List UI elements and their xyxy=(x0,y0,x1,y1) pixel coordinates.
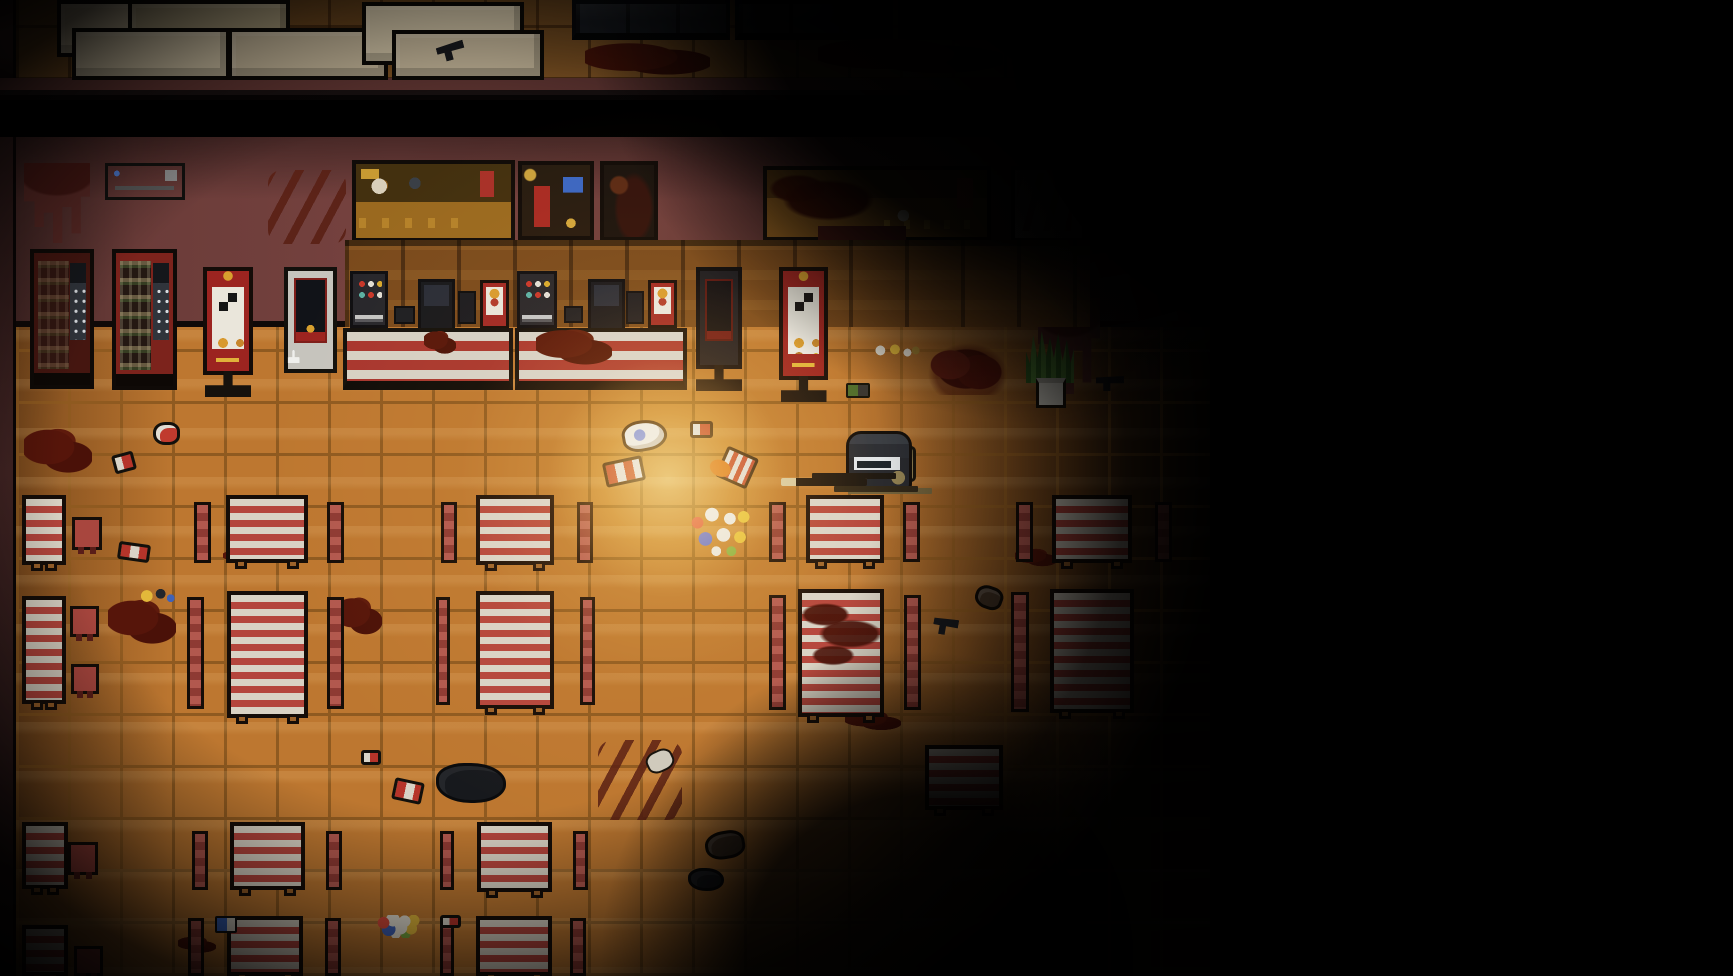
self-order-kiosk xyxy=(284,267,337,373)
dining-table xyxy=(22,822,68,889)
drink-dispenser xyxy=(350,271,388,328)
backroom-left-wall xyxy=(0,0,16,80)
booth-bench xyxy=(188,918,204,976)
stool xyxy=(71,664,99,694)
booth-bench xyxy=(573,831,588,890)
order-kiosk-sign xyxy=(779,267,828,380)
cash-register xyxy=(418,279,455,331)
blood-smear xyxy=(585,40,710,78)
drink-dispenser xyxy=(517,271,557,328)
food-litter xyxy=(133,585,179,607)
dining-table xyxy=(925,745,1003,810)
counter-device xyxy=(394,306,415,324)
order-kiosk-sign xyxy=(203,267,253,375)
dining-table xyxy=(227,916,303,976)
player-character xyxy=(846,431,912,493)
dining-table xyxy=(476,916,552,976)
self-order-kiosk-dark xyxy=(696,267,742,369)
stool xyxy=(68,842,98,875)
dropped-bag xyxy=(436,763,506,803)
booth-bench xyxy=(327,597,344,709)
booth-bench xyxy=(440,831,454,890)
dining-table xyxy=(476,495,554,565)
dining-table xyxy=(806,495,884,563)
blood-pool xyxy=(536,328,612,368)
booth-bench xyxy=(194,502,211,563)
game-viewport[interactable] xyxy=(0,0,1733,976)
blood-pool xyxy=(24,427,92,477)
counter-device xyxy=(564,306,583,323)
potted-plant-pot xyxy=(1036,378,1066,408)
booth-bench xyxy=(326,831,342,890)
booth-bench xyxy=(1155,502,1172,562)
backroom-wall xyxy=(0,78,1090,100)
booth-bench xyxy=(441,502,457,563)
dining-table xyxy=(1050,589,1134,713)
booth-bench xyxy=(570,918,586,976)
dining-table xyxy=(476,591,554,709)
stool xyxy=(70,606,99,637)
booth-bench xyxy=(577,502,593,563)
booth-bench xyxy=(769,502,786,562)
soda-can xyxy=(690,421,713,438)
card-terminal xyxy=(626,291,644,324)
dining-table xyxy=(22,925,68,976)
counter-menu-stand xyxy=(648,280,677,328)
menu-board xyxy=(600,161,658,241)
menu-board xyxy=(518,161,594,240)
blood-pool xyxy=(424,330,456,356)
storage-shelf xyxy=(898,0,1050,40)
menu-board xyxy=(1011,166,1086,242)
booth-bench xyxy=(580,597,595,705)
dining-table-bloody xyxy=(798,589,884,717)
soda-can xyxy=(440,915,461,928)
dining-table xyxy=(477,822,552,892)
vending-machine xyxy=(30,249,94,389)
wall-blood xyxy=(268,170,346,244)
booth-bench xyxy=(192,831,208,890)
booth-bench xyxy=(1016,502,1033,562)
dining-table xyxy=(226,495,308,563)
cash-register xyxy=(588,279,625,331)
blood-smear xyxy=(818,35,1003,77)
booth-bench xyxy=(904,595,921,710)
booth-bench xyxy=(436,597,450,705)
crushed-can xyxy=(846,383,870,398)
dining-table xyxy=(22,596,66,704)
restaurant-left-wall xyxy=(0,137,16,976)
booth-bench xyxy=(1011,592,1029,712)
dining-table xyxy=(230,822,305,890)
booth-bench xyxy=(903,502,920,562)
stool xyxy=(72,517,102,550)
dining-table xyxy=(1052,495,1132,563)
booth-bench xyxy=(325,918,341,976)
litter xyxy=(215,916,237,933)
air-conditioner xyxy=(105,163,185,200)
stool xyxy=(74,946,103,976)
vending-machine xyxy=(112,249,177,390)
counter-menu-stand xyxy=(480,280,509,329)
spilled-trash xyxy=(376,915,423,938)
card-terminal xyxy=(458,291,476,324)
soda-can xyxy=(361,750,381,765)
dining-table xyxy=(22,495,66,565)
corpse xyxy=(928,343,1008,395)
storage-shelf xyxy=(572,0,730,40)
booth-bench xyxy=(187,597,204,709)
debris xyxy=(688,868,724,891)
storage-shelf xyxy=(735,0,893,40)
crate xyxy=(72,28,230,80)
dropped-shoe xyxy=(153,422,180,445)
spilled-trash xyxy=(686,503,758,561)
dining-table xyxy=(227,591,308,718)
menu-board xyxy=(352,160,515,242)
booth-bench xyxy=(769,595,786,710)
crate xyxy=(392,30,544,80)
food-scraps xyxy=(870,341,922,362)
booth-bench xyxy=(327,502,344,563)
